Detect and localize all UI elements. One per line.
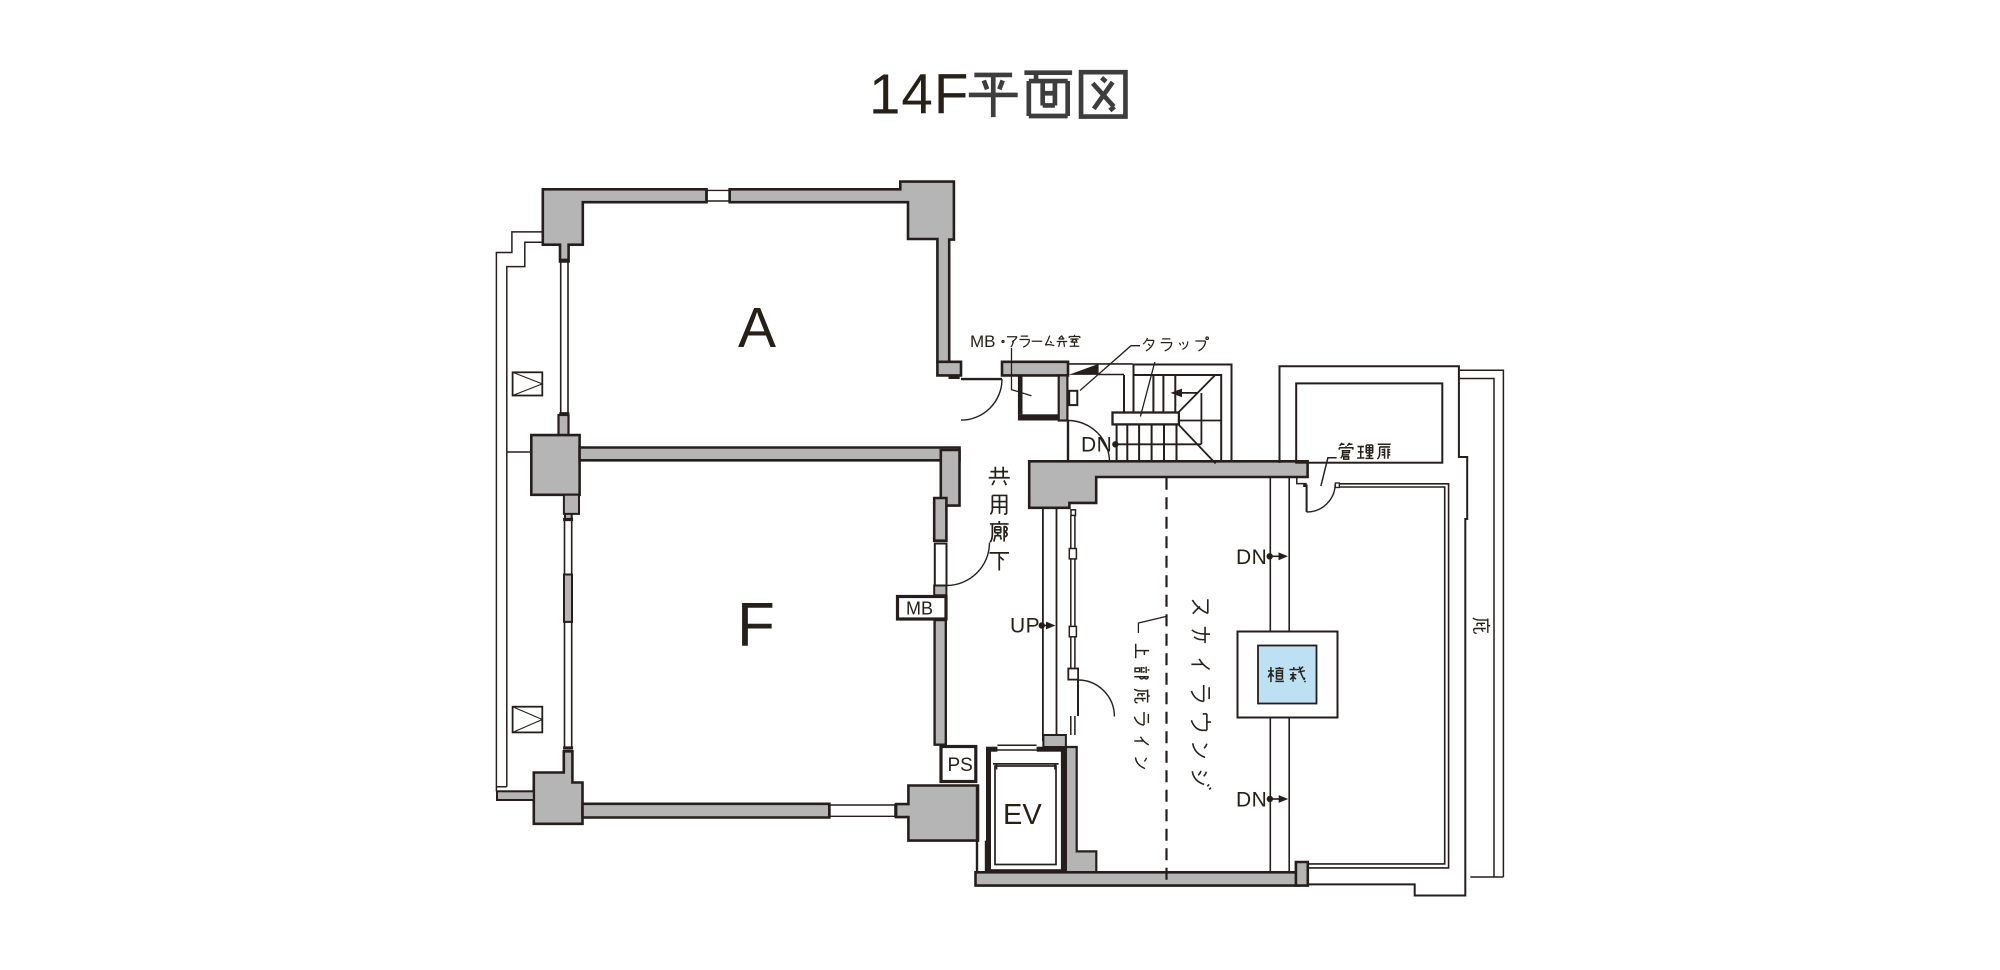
svg-text:MB: MB <box>906 599 933 619</box>
svg-text:F: F <box>737 591 775 660</box>
svg-text:A: A <box>738 296 776 360</box>
svg-text:DN: DN <box>1236 546 1267 569</box>
svg-text:UP: UP <box>1010 615 1040 638</box>
svg-text:PS: PS <box>948 755 973 776</box>
svg-text:DN: DN <box>1236 789 1267 812</box>
svg-text:14F: 14F <box>869 63 969 126</box>
svg-text:MB: MB <box>970 332 996 351</box>
svg-text:EV: EV <box>1003 799 1042 831</box>
svg-text:DN: DN <box>1081 434 1112 457</box>
